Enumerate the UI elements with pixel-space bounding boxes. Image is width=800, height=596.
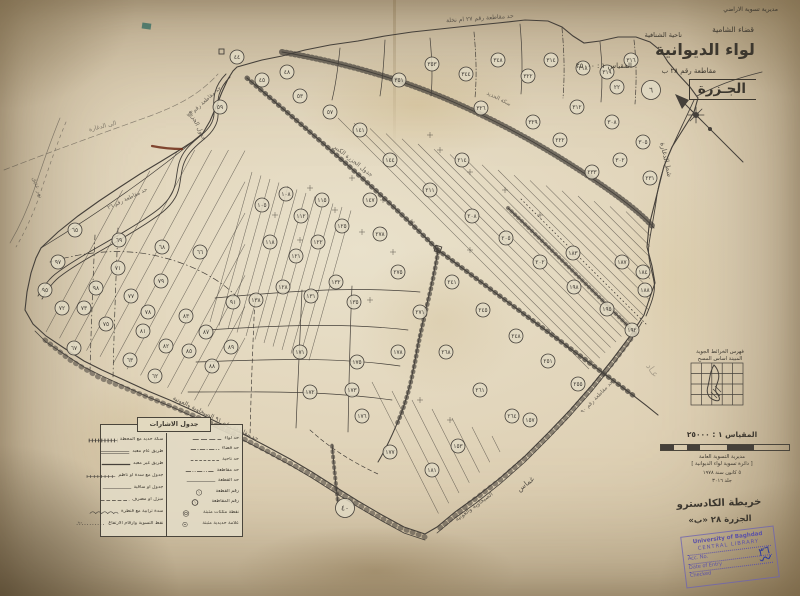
svg-text:١١٨: ١١٨ <box>265 240 274 246</box>
svg-text:٤٠: ٤٠ <box>341 504 349 513</box>
north-arrow-icon <box>675 94 743 162</box>
svg-text:٣٠٥: ٣٠٥ <box>638 140 647 146</box>
legend-label: طريق غير معبد <box>133 461 163 466</box>
svg-text:١٨٧: ١٨٧ <box>617 260 626 266</box>
legend-label: علامة حديدية مثبتة <box>202 521 239 526</box>
legend-label: نقطة مثلثات مثبتة <box>203 510 239 515</box>
legend-label: جدول او ساقية <box>134 485 164 490</box>
legend-row: علامة حديدية مثبتة <box>170 518 239 529</box>
svg-text:١٣١: ١٣١ <box>306 294 315 300</box>
svg-text:١٧١: ١٧١ <box>295 350 304 356</box>
svg-text:١٢٥: ١٢٥ <box>337 224 346 230</box>
district-name-box: الجـزرة <box>689 79 756 100</box>
svg-text:٦: ٦ <box>649 86 653 95</box>
index-map-grid <box>690 362 744 406</box>
agency-label: مديرية تسوية الاراضي <box>723 6 778 13</box>
svg-text:١٨٤: ١٨٤ <box>638 269 647 276</box>
svg-text:حد مقاطعة رقم ٢٦: حد مقاطعة رقم ٢٦ <box>107 187 149 212</box>
legend-label: حد القطعة <box>218 478 239 483</box>
road-hatching <box>440 332 636 528</box>
svg-text:١٢٢: ١٢٢ <box>313 240 322 246</box>
svg-text:٧٥: ٧٥ <box>103 322 109 328</box>
scale-heading: المقياس ١ : ٢٥٠٠٠ <box>656 430 788 439</box>
legend-label: حد ناحية <box>222 457 239 462</box>
svg-text:١٥٣: ١٥٣ <box>453 444 462 450</box>
svg-text:٩٨: ٩٨ <box>93 286 99 292</box>
svg-text:١٧٦: ١٧٦ <box>357 414 366 420</box>
svg-text:٦٩: ٦٩ <box>116 238 122 244</box>
legend-symbol-circle-dot-icon <box>170 514 200 533</box>
svg-text:٢٤٥: ٢٤٥ <box>478 307 487 314</box>
scale-note-2: [ دائرة تسوية لواء الديوانية ] <box>648 461 796 468</box>
svg-text:١٣٨: ١٣٨ <box>251 298 260 304</box>
legend-column-right: حد لواءحد قضاءحد ناحيةحد مقاطعةحد القطعة… <box>166 433 242 536</box>
svg-text:٢٣١: ٢٣١ <box>645 176 654 182</box>
nahiya-label: ناحية الشنافية <box>645 31 682 39</box>
svg-text:١١٥: ١١٥ <box>317 198 326 204</box>
svg-text:١٣٥: ١٣٥ <box>349 300 358 306</box>
red-ink-mark <box>152 146 182 149</box>
svg-text:٨٥: ٨٥ <box>186 349 192 355</box>
svg-text:٣٤٨: ٣٤٨ <box>493 57 502 64</box>
svg-text:١٢١: ١٢١ <box>291 254 300 260</box>
svg-text:٩٧: ٩٧ <box>55 260 61 266</box>
svg-text:غماس: غماس <box>515 474 536 493</box>
svg-text:١٤١: ١٤١ <box>355 127 364 134</box>
svg-text:٨٧: ٨٧ <box>203 330 209 336</box>
scale-bar <box>660 444 790 451</box>
svg-text:٣٥٣: ٣٥٣ <box>427 62 436 68</box>
svg-text:١٨٨: ١٨٨ <box>640 288 649 294</box>
svg-text:٢٤٨: ٢٤٨ <box>511 333 520 340</box>
scale-note-3: ٥ كانون سنة ١٩٧٨ <box>648 470 796 477</box>
svg-text:٦٦: ٦٦ <box>197 250 203 256</box>
svg-text:٧٢: ٧٢ <box>59 306 65 312</box>
svg-text:٥٧: ٥٧ <box>327 110 333 116</box>
svg-text:١٤٧: ١٤٧ <box>365 197 374 204</box>
svg-text:٧١: ٧١ <box>115 266 121 272</box>
svg-text:١٩٨: ١٩٨ <box>569 285 578 291</box>
survey-cross-marks <box>272 132 543 423</box>
legend-label: طريق عام معبد <box>132 449 163 454</box>
svg-text:٣١٤: ٣١٤ <box>546 57 555 64</box>
legend-title: جدول الاشارات <box>137 417 211 432</box>
svg-text:١٠٨: ١٠٨ <box>281 192 290 198</box>
svg-text:٣٤٦: ٣٤٦ <box>78 521 83 524</box>
svg-text:٨٨: ٨٨ <box>209 364 215 370</box>
svg-text:١٤٤: ١٤٤ <box>385 157 394 164</box>
svg-text:٢٦٤: ٢٦٤ <box>507 413 516 420</box>
qada-label: قضاء الشامية <box>712 25 754 34</box>
svg-text:٢٤١: ٢٤١ <box>447 279 456 286</box>
legend-label: حد قضاء <box>222 446 239 451</box>
svg-text:٦٥: ٦٥ <box>72 228 78 234</box>
scale-note-4: جلد ٣٠١٦ <box>648 478 796 485</box>
svg-text:١٧٥: ١٧٥ <box>352 360 361 366</box>
svg-text:٧٨: ٧٨ <box>145 310 151 316</box>
svg-text:٥٣: ٥٣ <box>297 94 303 100</box>
map-title-liwa: لواء الديوانية <box>640 40 770 59</box>
svg-text:٣٤٤: ٣٤٤ <box>461 71 470 78</box>
svg-text:٣٥١: ٣٥١ <box>394 78 403 84</box>
svg-text:٤٨: ٤٨ <box>284 69 290 76</box>
svg-text:٢٧٥: ٢٧٥ <box>393 270 402 276</box>
svg-text:١٧٨: ١٧٨ <box>393 350 402 356</box>
legend-label: سدة ترابية مع قنطرة <box>121 509 163 514</box>
svg-text:٢٧٨: ٢٧٨ <box>375 232 384 238</box>
svg-text:٦٨: ٦٨ <box>159 245 165 251</box>
svg-text:٣٢٩: ٣٢٩ <box>528 120 537 126</box>
legend-box: جدول الاشارات حد لواءحد قضاءحد ناحيةحد م… <box>100 424 243 537</box>
index-caption-line1: فهرس الخرائط الجوية <box>696 349 744 355</box>
svg-text:شط الدغارة: شط الدغارة <box>658 141 673 177</box>
svg-text:٨١: ٨١ <box>140 329 146 335</box>
svg-text:١٧٣: ١٧٣ <box>347 388 356 394</box>
svg-text:٢٥٥: ٢٥٥ <box>573 382 582 388</box>
svg-text:٢٦١: ٢٦١ <box>475 388 484 394</box>
svg-text:٢٠٥: ٢٠٥ <box>501 236 510 242</box>
svg-text:١٧٧: ١٧٧ <box>385 450 394 456</box>
legend-label: رقم المقاطعة <box>212 499 240 504</box>
svg-text:٢٥١: ٢٥١ <box>543 359 552 365</box>
svg-text:١٧٢: ١٧٢ <box>305 390 314 396</box>
legend-label: مبزل او مصرف <box>132 497 163 502</box>
svg-text:٢٧١: ٢٧١ <box>415 310 424 316</box>
road-line <box>437 322 642 533</box>
svg-text:٧٧: ٧٧ <box>128 294 134 300</box>
svg-text:٧٣: ٧٣ <box>81 306 87 312</box>
svg-text:١٠٥: ١٠٥ <box>257 203 266 209</box>
svg-text:عـاد: عـاد <box>643 362 660 380</box>
svg-text:الى الدغارة: الى الدغارة <box>88 120 117 134</box>
teal-mark <box>142 22 152 29</box>
svg-text:٢٠٨: ٢٠٨ <box>467 214 476 220</box>
svg-text:٣١٩: ٣١٩ <box>602 70 611 76</box>
svg-text:٣٠٨: ٣٠٨ <box>607 120 616 126</box>
legend-row: نقط التسوية وارقام الارتفاع٣٤٦ <box>76 517 163 529</box>
outside-features <box>4 74 218 247</box>
legend-label: رقم القطعة <box>216 489 239 494</box>
svg-text:٢٣٣: ٢٣٣ <box>587 170 596 176</box>
svg-text:٣٠٢: ٣٠٢ <box>615 158 624 164</box>
svg-text:١٢٨: ١٢٨ <box>278 285 287 291</box>
svg-text:٩٥: ٩٥ <box>42 288 48 294</box>
svg-text:٤٤: ٤٤ <box>234 54 240 61</box>
svg-text:٧٩: ٧٩ <box>158 279 164 285</box>
svg-text:١٩٥: ١٩٥ <box>602 307 611 313</box>
muqataa-label: مقاطعة رقم ٢٨ ب <box>662 67 716 75</box>
svg-text:١٥٧: ١٥٧ <box>525 418 534 424</box>
svg-text:٢٢: ٢٢ <box>614 85 620 91</box>
svg-text:٨٢: ٨٢ <box>163 344 169 350</box>
legend-column-left: سكة حديد مع المحطةطريق عام معبدطريق غير … <box>73 433 166 536</box>
svg-text:٩١: ٩١ <box>230 300 236 306</box>
svg-text:٤٥: ٤٥ <box>259 77 265 84</box>
legend-label: حد لواء <box>224 436 239 441</box>
svg-text:١١٢: ١١٢ <box>296 214 305 220</box>
index-caption-line2: المبينة اساس المسح <box>698 356 743 362</box>
legend-label: حد مقاطعة <box>217 468 239 473</box>
svg-text:٦٧: ٦٧ <box>71 346 77 352</box>
legend-label: نقط التسوية وارقام الارتفاع <box>108 521 163 526</box>
svg-text:١٨١: ١٨١ <box>427 468 436 474</box>
svg-text:١٨٣: ١٨٣ <box>568 251 577 257</box>
svg-text:٦٢: ٦٢ <box>152 374 158 380</box>
svg-text:سكة الحديد: سكة الحديد <box>485 90 512 108</box>
svg-text:٥٩: ٥٩ <box>217 105 223 111</box>
svg-text:٨٩: ٨٩ <box>228 345 234 351</box>
svg-text:٢٠٢: ٢٠٢ <box>535 260 544 266</box>
right-river <box>646 72 762 316</box>
scanned-cadastral-map: ٤٤٤٥٤٨٥٣٥٧٥٩٣٥١٣٥٣٣٤٤٣٤٨٣٢٢٣١٤٣١٨٣١٩٣١٦٢… <box>0 0 800 596</box>
svg-text:٣٢٦: ٣٢٦ <box>476 106 485 112</box>
svg-text:٣٢٢: ٣٢٢ <box>523 74 532 80</box>
svg-text:٦٣: ٦٣ <box>127 358 133 364</box>
svg-text:٨٣: ٨٣ <box>183 314 189 320</box>
svg-text:١٩٢: ١٩٢ <box>627 328 636 334</box>
svg-text:١٣٢: ١٣٢ <box>331 280 340 286</box>
svg-text:٢٢٢: ٢٢٢ <box>555 138 564 144</box>
vertical-canal <box>332 250 438 504</box>
svg-text:٣١٢: ٣١٢ <box>572 105 581 111</box>
svg-text:٢١٤: ٢١٤ <box>457 157 466 164</box>
scale-small-label: المقياس ١ : ٢٥٠٠٠ <box>576 62 632 70</box>
svg-text:٢١١: ٢١١ <box>425 188 434 194</box>
index-map-caption: فهرس الخرائط الجوية المبينة اساس المسح <box>668 349 772 362</box>
legend-symbol-dotted-num-icon: ٣٤٦ <box>76 514 106 533</box>
svg-text:٢٦٨: ٢٦٨ <box>441 350 450 356</box>
scale-note-1: مديرية التسوية العامة <box>648 454 796 461</box>
svg-text:الصبخاوية والعونية: الصبخاوية والعونية <box>454 491 495 523</box>
